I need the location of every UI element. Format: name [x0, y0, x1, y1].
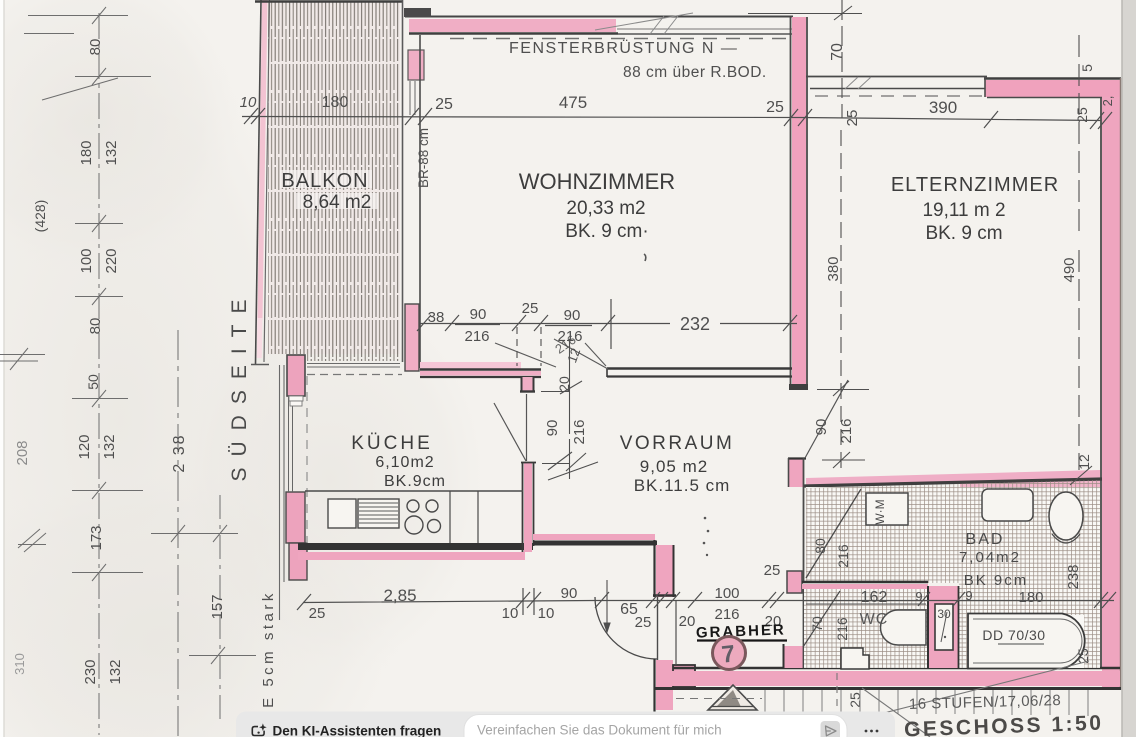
svg-text:8,64 m2: 8,64 m2	[303, 192, 372, 213]
svg-text:BR-88 cm: BR-88 cm	[416, 128, 431, 188]
svg-text:25: 25	[764, 562, 781, 579]
svg-text:30: 30	[937, 607, 951, 621]
svg-text:180: 180	[78, 140, 95, 165]
svg-text:BK 9cm: BK 9cm	[964, 572, 1029, 589]
svg-text:132: 132	[101, 434, 118, 459]
svg-text:208: 208	[14, 440, 31, 465]
svg-text:90: 90	[813, 419, 830, 436]
svg-text:132: 132	[103, 140, 120, 165]
svg-text:WC: WC	[860, 611, 889, 628]
svg-text:238: 238	[1065, 564, 1082, 589]
svg-text:216: 216	[464, 328, 489, 345]
svg-text:120: 120	[76, 434, 93, 459]
svg-text:9,05 m2: 9,05 m2	[640, 457, 708, 476]
svg-text:216: 216	[838, 418, 855, 443]
svg-text:80: 80	[812, 538, 828, 554]
svg-text:90: 90	[544, 420, 561, 437]
svg-text:157: 157	[209, 594, 226, 619]
svg-text:390: 390	[929, 98, 957, 117]
svg-text:9: 9	[965, 588, 972, 603]
svg-text:100: 100	[714, 585, 739, 602]
svg-text:80: 80	[87, 39, 104, 56]
svg-text:19,11 m 2: 19,11 m 2	[922, 200, 1005, 221]
svg-text:BK.9cm: BK.9cm	[384, 473, 446, 490]
svg-text:12: 12	[1076, 454, 1092, 470]
svg-text:173: 173	[88, 525, 105, 550]
svg-text:20: 20	[679, 613, 696, 630]
svg-text:KÜCHE: KÜCHE	[351, 433, 433, 454]
svg-text:Vereinfachen Sie das Dokument: Vereinfachen Sie das Dokument für mich	[477, 723, 722, 737]
svg-text:E 5cm stark: E 5cm stark	[260, 590, 277, 708]
svg-text:6,10m2: 6,10m2	[375, 454, 434, 471]
svg-text:2,85: 2,85	[383, 586, 416, 605]
svg-text:7,04m2: 7,04m2	[959, 549, 1021, 566]
svg-text:BK. 9 cm: BK. 9 cm	[925, 223, 1002, 244]
svg-text:20,33 m2: 20,33 m2	[566, 198, 645, 219]
svg-text:(428): (428)	[32, 200, 48, 233]
svg-text:25: 25	[766, 99, 784, 116]
svg-text:132: 132	[107, 659, 124, 684]
svg-text:Den KI-Assistenten fragen: Den KI-Assistenten fragen	[273, 724, 442, 737]
svg-text:70: 70	[809, 616, 825, 632]
svg-text:180: 180	[322, 94, 349, 111]
svg-text:GRABHER: GRABHER	[696, 621, 786, 641]
svg-text:90: 90	[564, 307, 581, 324]
svg-text:7: 7	[720, 640, 736, 668]
svg-text:475: 475	[559, 93, 587, 112]
svg-text:70: 70	[829, 43, 846, 61]
svg-text:W·M: W·M	[873, 499, 887, 524]
svg-text:216: 216	[834, 617, 850, 641]
svg-text:216: 216	[571, 419, 588, 444]
svg-text:ELTERNZIMMER: ELTERNZIMMER	[891, 174, 1059, 196]
svg-text:25: 25	[635, 614, 652, 631]
svg-text:80: 80	[87, 318, 104, 335]
svg-text:2,: 2,	[1100, 96, 1115, 107]
svg-text:10: 10	[240, 94, 257, 111]
svg-text:232: 232	[680, 314, 710, 334]
svg-text:5: 5	[1079, 64, 1095, 72]
svg-text:25: 25	[1074, 107, 1090, 123]
svg-text:25: 25	[522, 300, 539, 317]
svg-text:SÜDSEITE: SÜDSEITE	[228, 288, 251, 481]
svg-text:25: 25	[309, 605, 326, 622]
svg-text:490: 490	[1061, 257, 1078, 282]
svg-text:WOHNZIMMER: WOHNZIMMER	[519, 169, 675, 194]
svg-text:25: 25	[844, 110, 861, 127]
svg-text:10: 10	[538, 605, 555, 622]
svg-text:162: 162	[861, 589, 888, 606]
svg-text:90: 90	[561, 585, 578, 602]
svg-text:216: 216	[835, 544, 851, 568]
svg-text:310: 310	[12, 653, 27, 675]
svg-text:90: 90	[470, 306, 487, 323]
svg-text:20: 20	[556, 376, 572, 392]
svg-text:38: 38	[428, 309, 445, 326]
svg-text:2 38: 2 38	[171, 433, 188, 472]
svg-text:25: 25	[435, 96, 453, 113]
svg-text:BAD: BAD	[966, 531, 1005, 548]
svg-text:216: 216	[714, 606, 739, 623]
svg-text:10: 10	[502, 605, 519, 622]
svg-text:FENSTERBRÜSTUNG N —: FENSTERBRÜSTUNG N —	[509, 39, 738, 57]
svg-text:9: 9	[915, 589, 922, 604]
svg-text:BK. 9 cm·: BK. 9 cm·	[565, 221, 648, 242]
svg-text:DD 70/30: DD 70/30	[982, 627, 1045, 643]
svg-text:BK.11.5 cm: BK.11.5 cm	[634, 476, 731, 495]
svg-text:88 cm über R.BOD.: 88 cm über R.BOD.	[623, 64, 767, 81]
svg-text:25: 25	[847, 692, 863, 708]
svg-text:180: 180	[1018, 589, 1043, 606]
svg-text:50: 50	[85, 374, 101, 390]
svg-text:220: 220	[103, 248, 120, 273]
svg-text:BALKON: BALKON	[281, 170, 368, 192]
svg-text:VORRAUM: VORRAUM	[620, 433, 735, 454]
svg-text:380: 380	[825, 256, 842, 281]
svg-text:230: 230	[82, 659, 99, 684]
svg-text:100: 100	[78, 248, 95, 273]
